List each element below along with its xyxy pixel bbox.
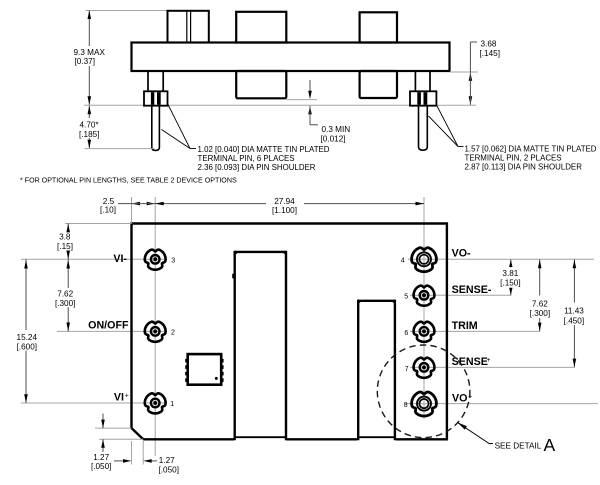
svg-text:9.3 MAX: 9.3 MAX (74, 48, 106, 57)
svg-text:VI-: VI- (113, 253, 127, 265)
svg-text:[.150]: [.150] (500, 278, 521, 287)
svg-text:TERMINAL PIN, 6 PLACES: TERMINAL PIN, 6 PLACES (198, 154, 295, 163)
svg-text:3: 3 (171, 257, 175, 264)
svg-text:[0.012]: [0.012] (321, 135, 346, 144)
svg-text:[.600]: [.600] (17, 342, 38, 351)
svg-text:1: 1 (170, 401, 174, 408)
svg-text:11.43: 11.43 (564, 307, 584, 316)
svg-text:27.94: 27.94 (274, 197, 295, 206)
svg-text:7.62: 7.62 (532, 300, 548, 309)
svg-text:[.050]: [.050] (159, 465, 180, 474)
svg-text:[.145]: [.145] (480, 49, 501, 58)
svg-text:+: + (487, 357, 491, 364)
svg-text:7: 7 (405, 366, 409, 373)
svg-text:0.3 MIN: 0.3 MIN (322, 125, 351, 134)
svg-text:[.300]: [.300] (530, 309, 551, 318)
svg-text:1.27: 1.27 (159, 456, 175, 465)
svg-text:SENSE: SENSE (452, 356, 488, 368)
svg-text:[.10]: [.10] (100, 206, 116, 215)
svg-text:2.87 [0.113] DIA PIN SHOULDER: 2.87 [0.113] DIA PIN SHOULDER (465, 163, 583, 172)
svg-text:[.300]: [.300] (55, 299, 76, 308)
svg-text:2: 2 (171, 329, 175, 336)
svg-text:3.81: 3.81 (502, 269, 518, 278)
svg-text:VO-: VO- (452, 248, 471, 260)
svg-text:[.15]: [.15] (57, 242, 73, 251)
svg-text:7.62: 7.62 (57, 289, 73, 298)
svg-text:ON/OFF: ON/OFF (88, 320, 129, 332)
svg-text:+: + (125, 393, 129, 400)
svg-text:[.050]: [.050] (91, 462, 112, 471)
svg-text:8: 8 (404, 402, 408, 409)
svg-text:* FOR OPTIONAL PIN LENGTHS, SE: * FOR OPTIONAL PIN LENGTHS, SEE TABLE 2 … (20, 177, 237, 185)
svg-text:SEE DETAIL: SEE DETAIL (495, 442, 542, 451)
svg-text:15.24: 15.24 (17, 333, 38, 342)
svg-text:4.70*: 4.70* (80, 121, 100, 130)
svg-text:VI: VI (114, 392, 124, 404)
svg-text:3.68: 3.68 (481, 40, 497, 49)
svg-text:1.57 [0.062] DIA MATTE TIN PLA: 1.57 [0.062] DIA MATTE TIN PLATED (465, 145, 597, 154)
svg-text:[0.37]: [0.37] (75, 57, 96, 66)
svg-text:[.450]: [.450] (564, 316, 585, 325)
svg-text:5: 5 (404, 294, 408, 301)
svg-text:1.02 [0.040] DIA MATTE TIN PLA: 1.02 [0.040] DIA MATTE TIN PLATED (198, 145, 330, 154)
svg-text:4: 4 (401, 258, 405, 265)
svg-text:6: 6 (404, 330, 408, 337)
svg-text:A: A (544, 435, 556, 455)
svg-text:[1.100]: [1.100] (272, 206, 297, 215)
svg-text:3.8: 3.8 (59, 233, 71, 242)
svg-text:1.27: 1.27 (93, 453, 109, 462)
svg-text:VO: VO (452, 392, 467, 404)
svg-text:TRIM: TRIM (452, 320, 478, 332)
svg-text:2.36 [0.093] DIA PIN SHOULDER: 2.36 [0.093] DIA PIN SHOULDER (198, 163, 316, 172)
svg-text:[.185]: [.185] (79, 130, 100, 139)
svg-text:TERMINAL PIN, 2 PLACES: TERMINAL PIN, 2 PLACES (465, 154, 562, 163)
svg-text:SENSE-: SENSE- (452, 284, 492, 296)
